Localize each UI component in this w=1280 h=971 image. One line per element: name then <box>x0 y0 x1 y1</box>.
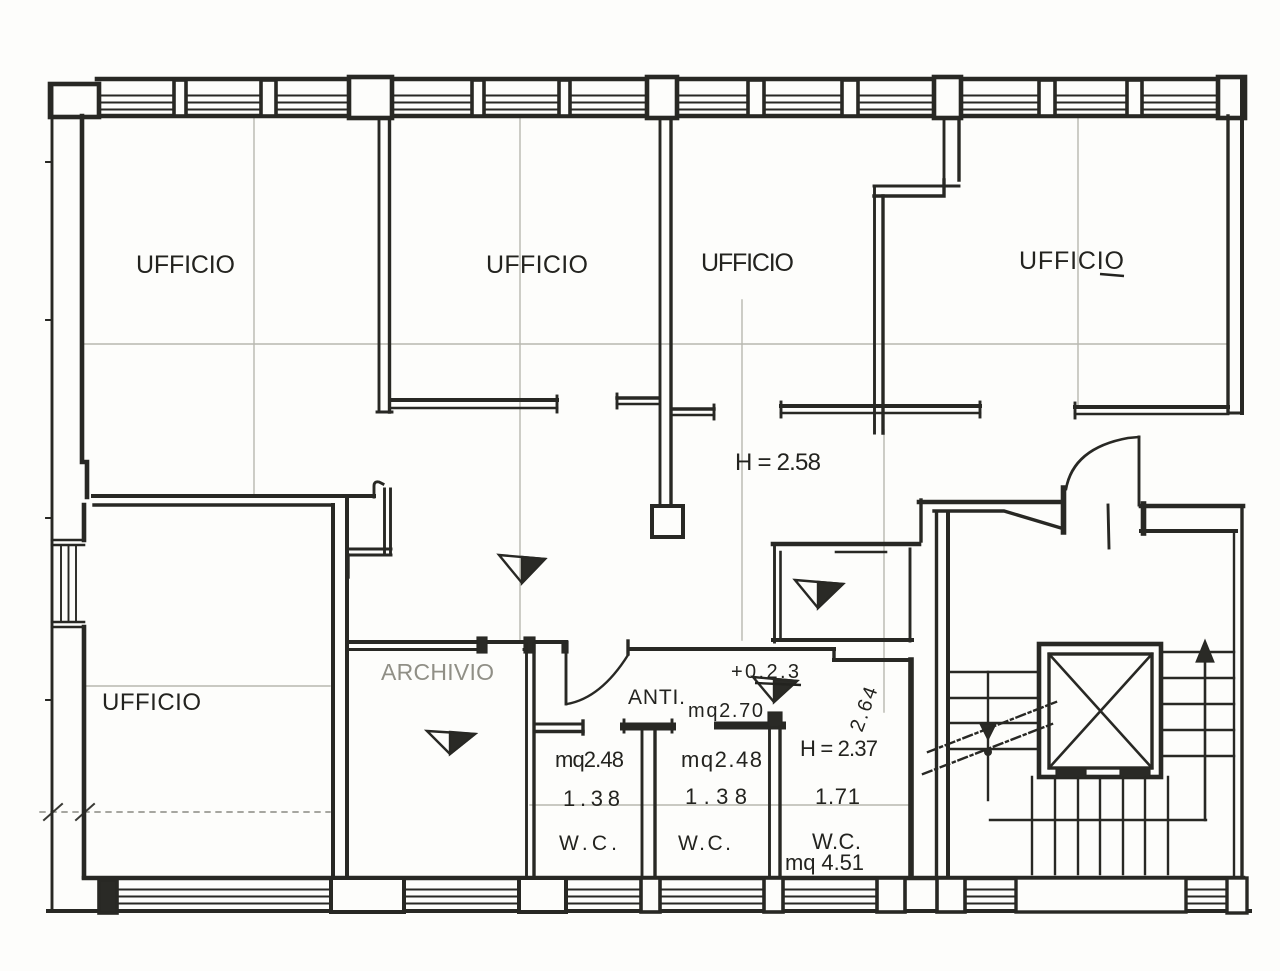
svg-text:H = 2.58: H = 2.58 <box>735 449 821 476</box>
svg-text:ARCHIVIO: ARCHIVIO <box>381 659 494 685</box>
svg-text:ANTI.: ANTI. <box>628 686 685 709</box>
svg-text:mq2.48: mq2.48 <box>681 747 762 772</box>
svg-text:1.71: 1.71 <box>815 784 860 809</box>
svg-text:1.38: 1.38 <box>685 784 747 809</box>
svg-text:mq2.48: mq2.48 <box>555 747 624 772</box>
svg-text:mq2.70: mq2.70 <box>688 700 763 722</box>
svg-text:1.38: 1.38 <box>563 786 620 811</box>
svg-text:UFFICIO: UFFICIO <box>701 249 794 277</box>
svg-text:UFFICIO: UFFICIO <box>102 689 201 716</box>
svg-text:UFFICIO: UFFICIO <box>486 251 588 279</box>
svg-text:H = 2.37: H = 2.37 <box>800 736 878 761</box>
svg-text:UFFICIO: UFFICIO <box>1019 247 1124 275</box>
svg-text:mq 4.51: mq 4.51 <box>785 850 864 875</box>
svg-text:UFFICIO: UFFICIO <box>136 251 235 279</box>
